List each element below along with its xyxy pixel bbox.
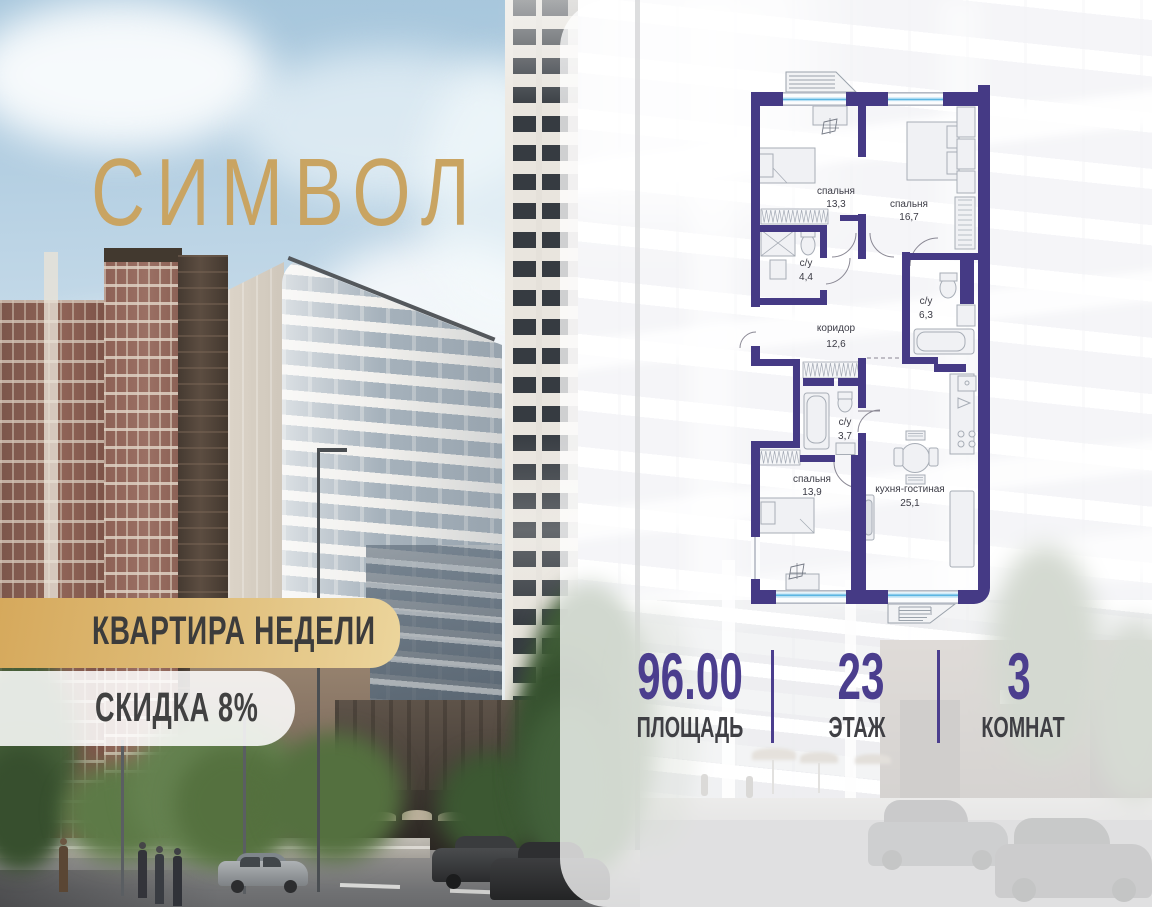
svg-text:16,7: 16,7	[899, 212, 919, 223]
svg-text:спальня: спальня	[890, 199, 928, 210]
svg-text:спальня: спальня	[793, 474, 831, 485]
svg-text:с/у: с/у	[839, 417, 852, 428]
svg-text:13,3: 13,3	[826, 199, 846, 210]
svg-text:25,1: 25,1	[900, 498, 920, 509]
svg-text:коридор: коридор	[817, 323, 856, 334]
svg-text:4,4: 4,4	[799, 272, 813, 283]
svg-text:спальня: спальня	[817, 186, 855, 197]
svg-text:6,3: 6,3	[919, 310, 933, 321]
svg-text:13,9: 13,9	[802, 487, 822, 498]
svg-text:12,6: 12,6	[826, 339, 846, 350]
svg-text:с/у: с/у	[800, 258, 813, 269]
svg-text:3,7: 3,7	[838, 431, 852, 442]
svg-text:кухня-гостиная: кухня-гостиная	[875, 484, 944, 495]
svg-text:с/у: с/у	[920, 296, 933, 307]
